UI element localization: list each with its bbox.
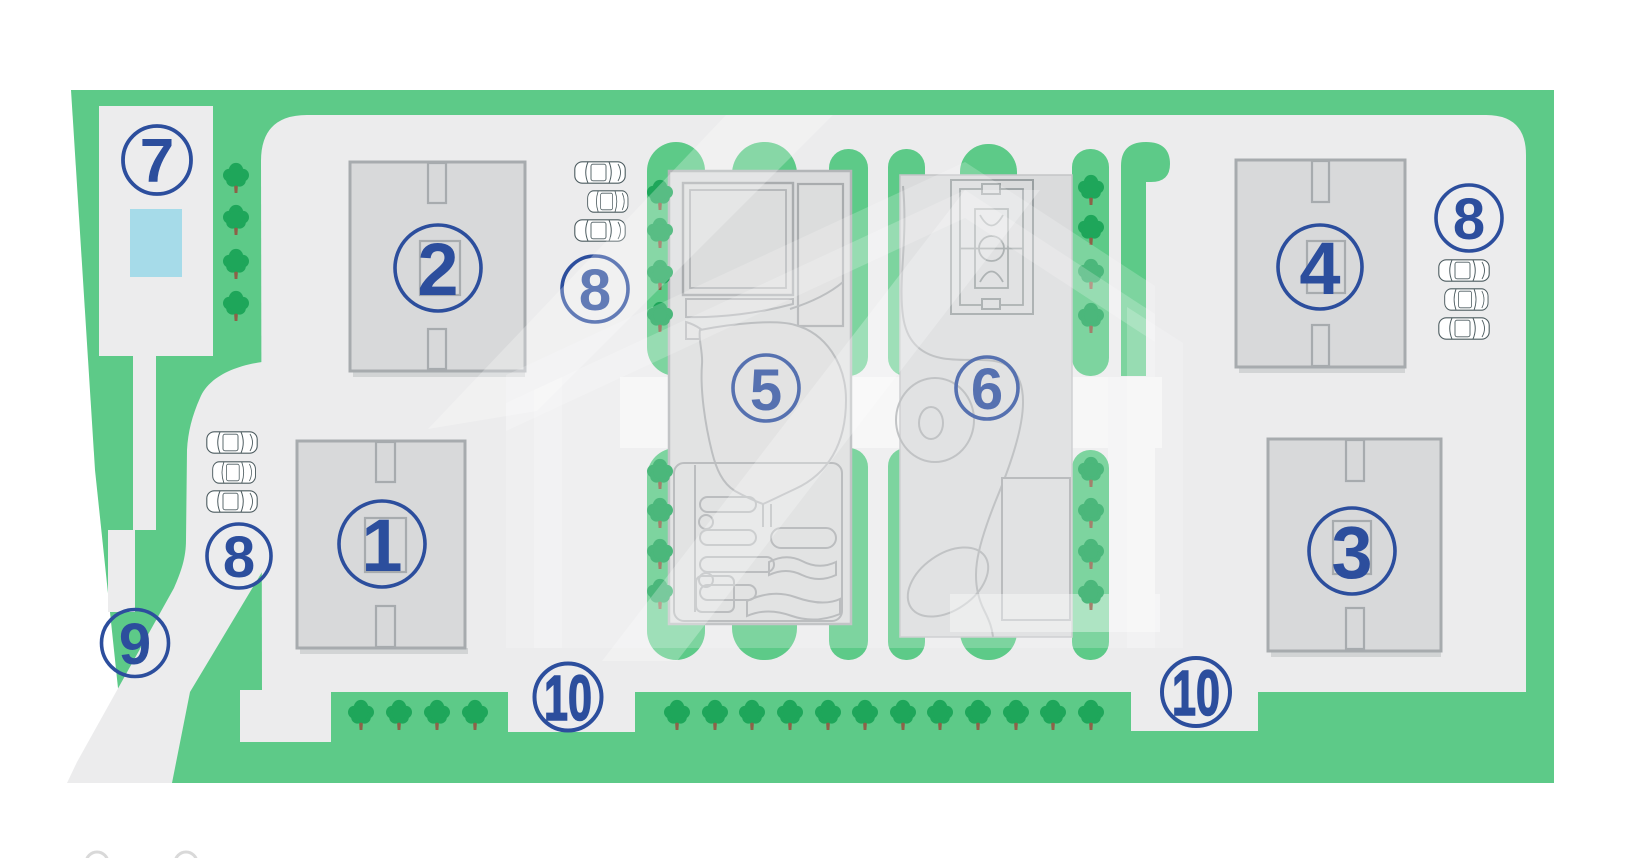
svg-text:9: 9: [119, 612, 151, 677]
svg-text:4: 4: [1299, 227, 1340, 310]
svg-text:10: 10: [544, 662, 592, 734]
svg-text:3: 3: [1331, 511, 1372, 594]
svg-text:2: 2: [417, 228, 458, 311]
svg-text:10: 10: [1172, 657, 1220, 729]
svg-text:8: 8: [223, 525, 255, 590]
svg-text:7: 7: [140, 127, 174, 196]
svg-text:8: 8: [1453, 187, 1485, 252]
svg-text:1: 1: [361, 504, 402, 587]
